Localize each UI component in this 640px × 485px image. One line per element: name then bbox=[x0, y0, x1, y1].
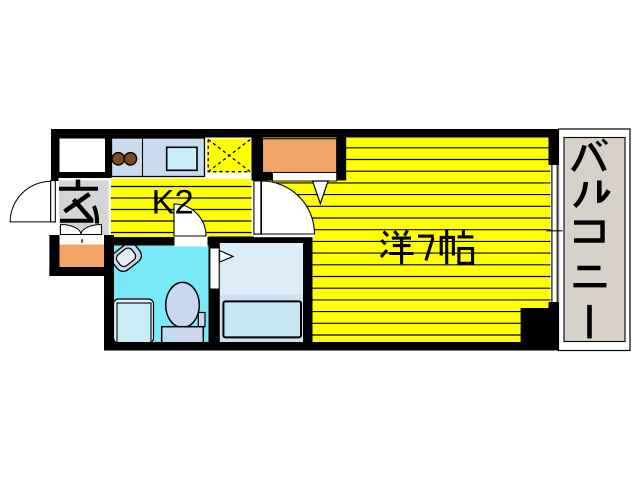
svg-text:K2: K2 bbox=[152, 184, 194, 222]
